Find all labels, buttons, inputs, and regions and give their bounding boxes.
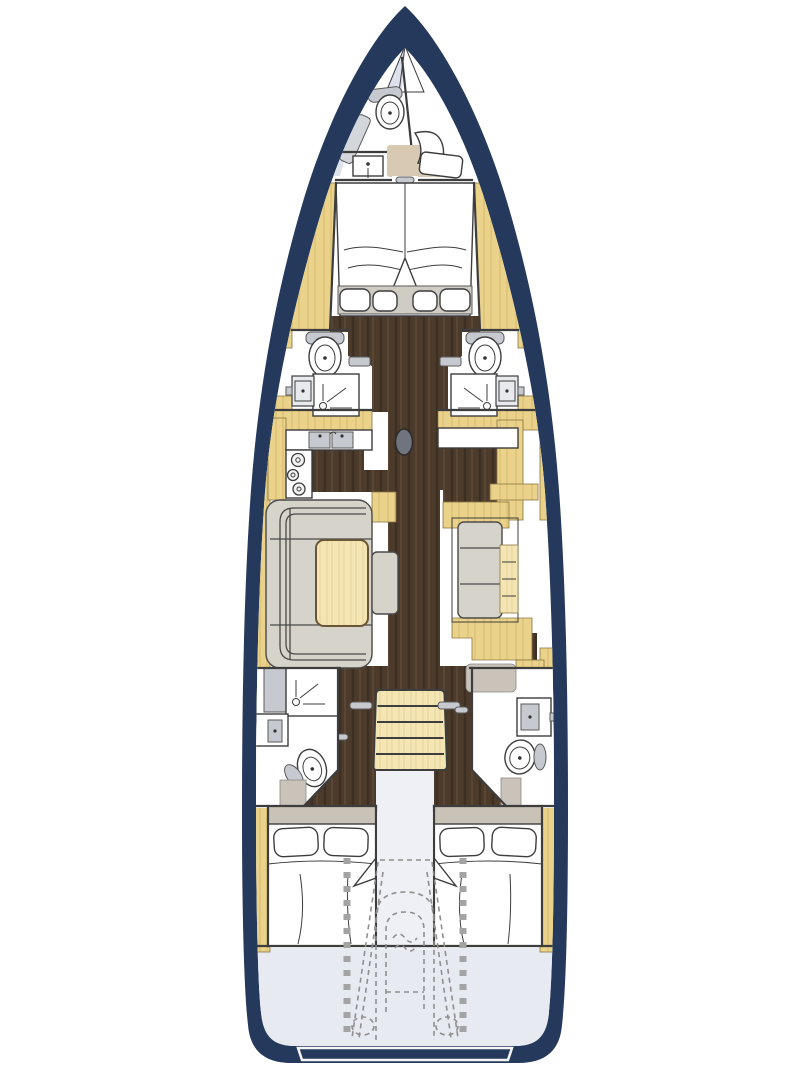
pillow <box>273 827 318 857</box>
yacht-floorplan <box>0 0 810 1080</box>
salon-locker <box>372 492 396 522</box>
stove-icon <box>286 450 312 498</box>
stbd-aft-sink-icon <box>517 698 556 736</box>
fwd-pillow <box>419 152 463 179</box>
pillow <box>491 827 536 857</box>
interior <box>240 40 570 1050</box>
port-head-door-handle <box>349 357 370 366</box>
port-headboard-shelf <box>268 806 376 824</box>
floorplan-canvas <box>0 0 810 1080</box>
mast <box>396 429 413 455</box>
port-aft-locker <box>264 668 286 712</box>
aft-cabin-door-handle-stbd <box>455 707 468 713</box>
fwd-door-handle <box>396 177 414 183</box>
forward-cabin <box>330 176 480 330</box>
stbd-aft-door-arc <box>534 744 546 770</box>
stbd-headboard-shelf <box>434 806 542 824</box>
stair-rail-port <box>350 702 372 709</box>
ottoman <box>372 552 398 614</box>
salon-table <box>316 540 368 626</box>
port-aft-shower-icon <box>286 668 338 716</box>
stbd-worktop <box>438 428 518 448</box>
pillow <box>324 827 369 857</box>
stbd-settee <box>458 522 502 618</box>
fwd-sink-icon <box>353 156 383 178</box>
companionway-stairs <box>373 690 447 770</box>
stbd-head-door-handle <box>440 357 461 366</box>
stern-cockpit-floor <box>240 948 570 1048</box>
pillow <box>440 827 485 857</box>
